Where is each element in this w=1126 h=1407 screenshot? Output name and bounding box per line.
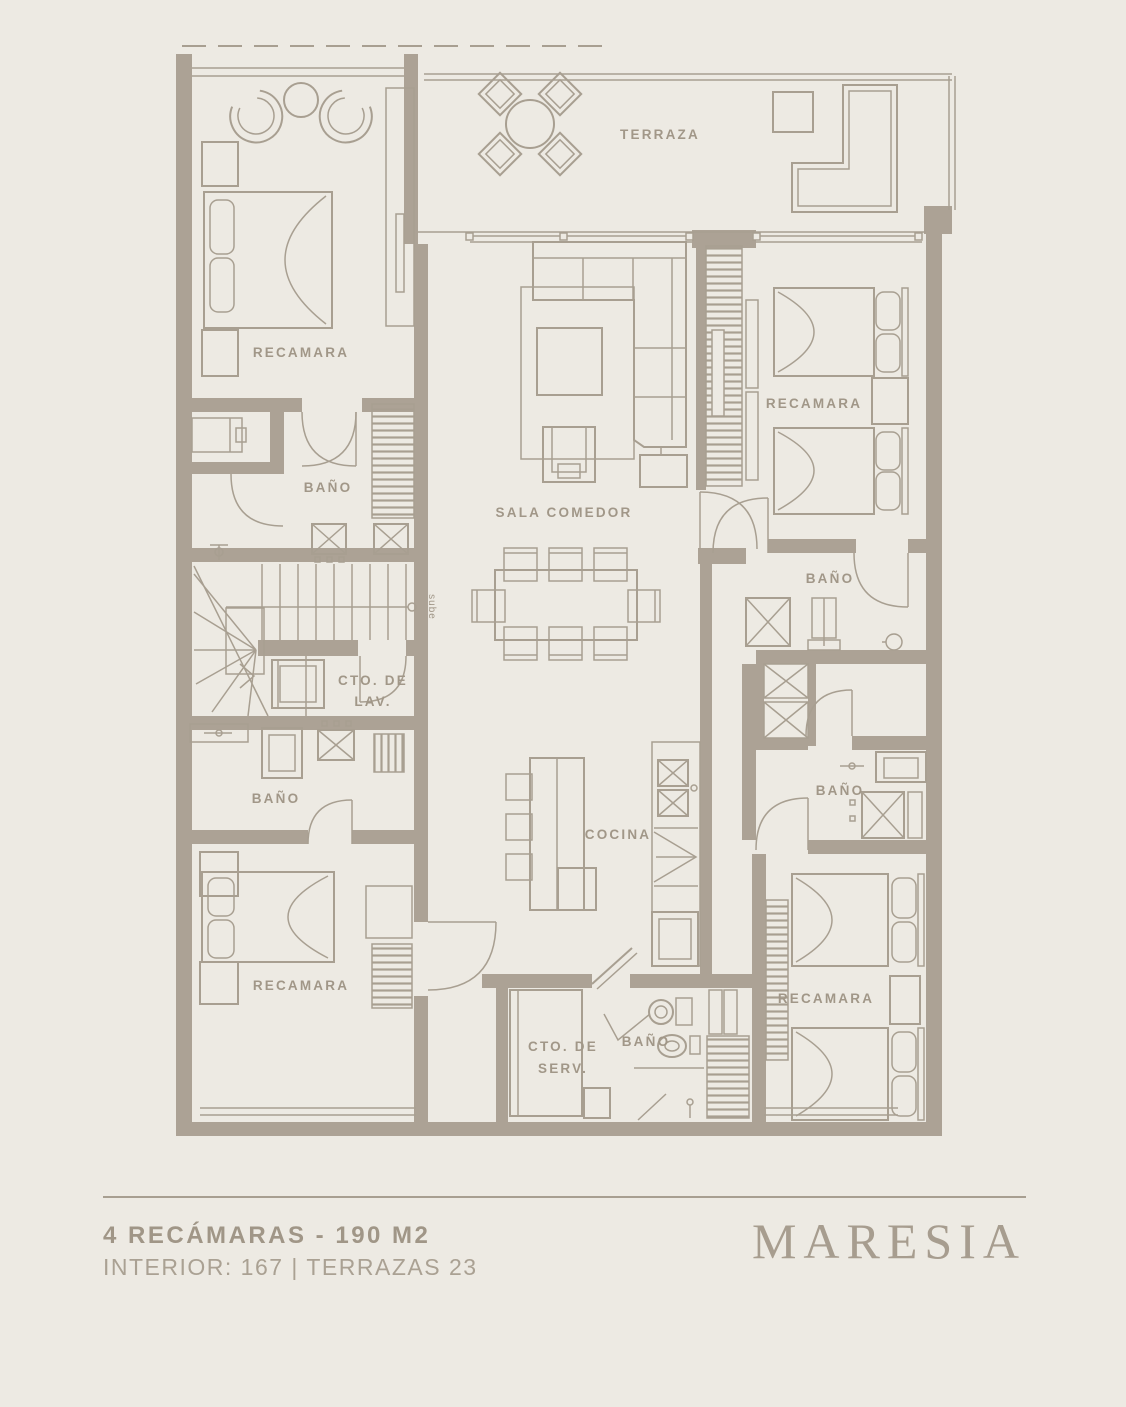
service-bed-icon [510, 990, 610, 1118]
room-label-bano-5: BAÑO [816, 783, 865, 798]
twin-bed-icon [792, 874, 924, 966]
twin-bed-icon [774, 288, 908, 376]
room-cuarto-lavado: CTO. DE LAV. [272, 656, 408, 716]
unit-summary: 4 RECÁMARAS - 190 M2 [103, 1222, 430, 1250]
double-bed-icon [204, 192, 332, 328]
room-bano-3: BAÑO [190, 721, 404, 844]
double-bed-icon [202, 872, 334, 962]
room-cuarto-servicio: CTO. DE SERV. [510, 948, 637, 1118]
floorplan-page: TERRAZA RECAMARA [0, 0, 1126, 1407]
nightstand-icon [200, 962, 238, 1004]
closet-icon [707, 990, 749, 1118]
room-label-cocina: COCINA [585, 827, 651, 842]
toilet-icon [649, 998, 692, 1025]
side-table-icon [640, 447, 687, 487]
outdoor-dining-table-icon [479, 73, 581, 175]
stairs-direction-label: sube [426, 594, 437, 620]
room-label-recamara-principal: RECAMARA [253, 345, 349, 360]
hall-closet-icon [706, 246, 758, 486]
nightstand-icon [202, 330, 238, 376]
shower-icon [850, 792, 904, 838]
room-bano-5: BAÑO [806, 690, 926, 838]
room-bano-principal: BAÑO [192, 404, 414, 562]
room-label-recamara-3: RECAMARA [253, 978, 349, 993]
door-arc [713, 498, 768, 553]
closet-icon [366, 886, 412, 1008]
nightstand-icon [872, 378, 908, 424]
washer-icon [272, 660, 324, 708]
room-terraza: TERRAZA [479, 73, 897, 212]
toilet-icon [882, 634, 902, 650]
room-bano-4: BAÑO [604, 990, 749, 1120]
vanity-icon [262, 728, 302, 778]
shafts [760, 660, 812, 742]
room-label-cuarto-lavado-2: LAV. [354, 694, 391, 709]
room-cocina: COCINA [506, 742, 700, 966]
sectional-sofa-icon [533, 242, 686, 447]
footer-divider [103, 1196, 1026, 1198]
bar-stool-icon [506, 774, 532, 880]
room-recamara-principal: RECAMARA [202, 83, 414, 376]
room-label-cuarto-lavado-1: CTO. DE [338, 673, 408, 688]
shower-icon [746, 598, 790, 646]
room-label-cuarto-servicio-1: CTO. DE [528, 1039, 598, 1054]
room-label-bano-4: BAÑO [622, 1034, 671, 1049]
nightstand-icon [202, 142, 238, 186]
panel-icon [908, 792, 922, 838]
nightstand-icon [200, 852, 238, 896]
dining-chair-icon [472, 548, 660, 660]
room-sala-comedor: SALA COMEDOR [472, 242, 758, 660]
brand-logo: MARESIA [752, 1212, 1026, 1270]
room-label-bano-principal: BAÑO [304, 480, 353, 495]
outdoor-sofa-icon [773, 85, 897, 212]
walls [176, 54, 952, 1136]
nightstand-icon [890, 976, 920, 1024]
dining-table-icon [472, 548, 660, 660]
door-arc [308, 800, 352, 844]
side-table-icon [284, 83, 318, 117]
armchair-icon [543, 427, 595, 482]
room-bano-2: BAÑO [746, 553, 908, 650]
room-label-bano-2: BAÑO [806, 571, 855, 586]
room-label-sala-comedor: SALA COMEDOR [496, 505, 633, 520]
twin-bed-icon [774, 428, 908, 514]
coffee-table-icon [537, 328, 602, 395]
fridge-icon [652, 912, 698, 966]
room-label-bano-3: BAÑO [252, 791, 301, 806]
sink-icon [192, 418, 246, 452]
door-arc [756, 798, 808, 850]
pedestal-sink-icon [808, 598, 840, 650]
twin-bed-icon [792, 1028, 924, 1120]
armchair-icon [310, 86, 378, 152]
vanity-icon [840, 752, 926, 782]
closet-icon [766, 900, 788, 1060]
shaft-icon [374, 734, 404, 772]
shower-icon [312, 524, 346, 562]
room-label-cuarto-servicio-2: SERV. [538, 1061, 588, 1076]
room-recamara-3: RECAMARA [200, 852, 496, 1008]
room-label-recamara-4: RECAMARA [778, 991, 874, 1006]
shower-icon [638, 1094, 693, 1120]
unit-areas: INTERIOR: 167 | TERRAZAS 23 [103, 1254, 478, 1281]
room-label-recamara-2: RECAMARA [766, 396, 862, 411]
door-arc [854, 553, 908, 607]
stove-hood-icon [654, 828, 698, 886]
closet-icon [372, 404, 414, 518]
room-label-terraza: TERRAZA [620, 127, 700, 142]
